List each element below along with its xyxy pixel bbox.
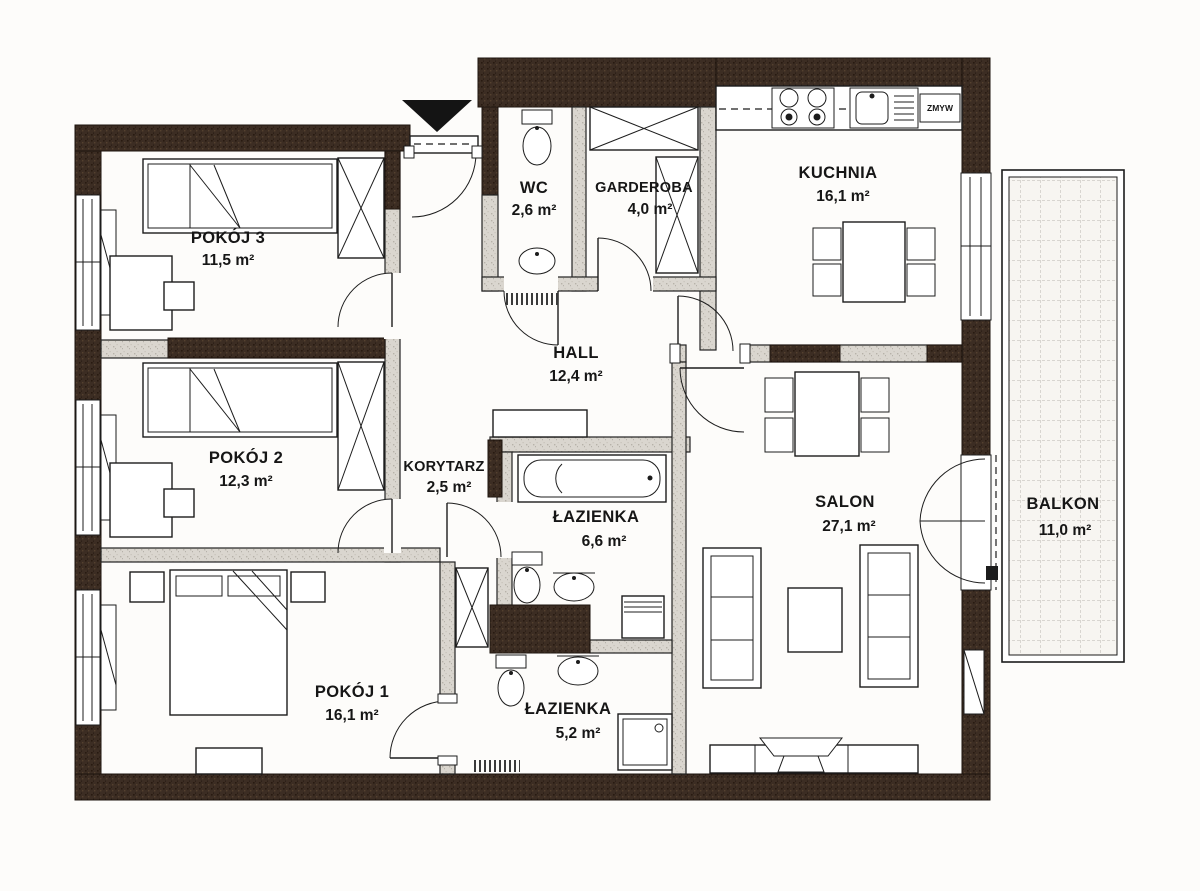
kitchen-sink-icon <box>850 88 918 128</box>
bathtub-icon <box>518 455 666 502</box>
coffee-table <box>788 588 842 652</box>
radiator <box>964 650 984 714</box>
entrance-arrow-icon <box>402 100 472 132</box>
room-area-lazienka-mala: 5,2 m² <box>556 725 601 742</box>
room-label-garderoba: GARDEROBA <box>595 180 693 196</box>
bed <box>143 159 337 233</box>
wardrobe-icon <box>590 107 698 150</box>
sink-icon <box>519 248 555 274</box>
room-area-pokoj1: 16,1 m² <box>325 707 378 724</box>
room-area-pokoj3: 11,5 m² <box>202 252 255 269</box>
room-label-kuchnia: KUCHNIA <box>799 164 878 182</box>
door-pokoj3 <box>338 273 392 327</box>
wardrobe-icon <box>456 568 488 647</box>
room-kuchnia: ZMYW KUCHNIA 16,1 m² <box>716 86 962 302</box>
desk <box>110 463 194 537</box>
kitchen-table <box>813 222 935 302</box>
room-garderoba: GARDEROBA 4,0 m² <box>590 107 698 273</box>
room-label-salon: SALON <box>815 493 875 511</box>
room-pokoj2: POKÓJ 2 12,3 m² <box>110 362 384 537</box>
shower-icon <box>618 714 672 770</box>
wardrobe-icon <box>338 158 384 258</box>
nightstand-right <box>291 572 325 602</box>
desk <box>110 256 194 330</box>
door-pokoj2 <box>338 499 392 553</box>
room-salon: SALON 27,1 m² <box>703 372 984 773</box>
room-label-balkon: BALKON <box>1027 495 1100 513</box>
washing-machine-icon <box>622 596 664 638</box>
toilet-icon <box>496 655 526 706</box>
room-label-wc: WC <box>520 179 548 197</box>
toilet-icon <box>522 110 552 165</box>
room-label-pokoj2: POKÓJ 2 <box>209 448 283 467</box>
sofa-right <box>860 545 918 687</box>
entrance-door-swing <box>412 153 476 217</box>
room-area-kuchnia: 16,1 m² <box>816 188 869 205</box>
room-pokoj1: POKÓJ 1 16,1 m² <box>130 570 389 774</box>
room-area-lazienka-duza: 6,6 m² <box>582 533 627 550</box>
balcony: BALKON 11,0 m² <box>1002 170 1124 662</box>
dishwasher-label: ZMYW <box>927 103 954 113</box>
room-lazienka-mala: ŁAZIENKA 5,2 m² <box>474 655 672 770</box>
room-area-balkon: 11,0 m² <box>1039 522 1092 539</box>
room-label-hall: HALL <box>553 344 599 362</box>
room-label-korytarz: KORYTARZ <box>403 459 484 475</box>
floor-plan-drawing: POKÓJ 3 11,5 m² POKÓJ 2 12,3 m² <box>0 0 1200 891</box>
room-area-wc: 2,6 m² <box>512 202 557 219</box>
dishwasher: ZMYW <box>920 94 960 122</box>
door-pokoj1 <box>390 701 447 758</box>
hall-cabinet <box>493 410 587 437</box>
room-label-pokoj1: POKÓJ 1 <box>315 682 389 701</box>
dresser <box>196 748 262 774</box>
room-area-pokoj2: 12,3 m² <box>219 473 272 490</box>
wardrobe-icon <box>338 362 384 490</box>
room-area-hall: 12,4 m² <box>549 368 602 385</box>
sofa-left <box>703 548 761 688</box>
dining-table <box>765 372 889 456</box>
door-balkon <box>920 455 998 590</box>
door-salon <box>680 368 744 432</box>
window-pokoj1 <box>76 590 116 725</box>
door-lazienka-duza <box>447 503 501 557</box>
room-label-pokoj3: POKÓJ 3 <box>191 228 265 247</box>
bed <box>143 363 337 437</box>
room-hall: HALL 12,4 m² <box>493 344 603 437</box>
room-label-lazienka-duza: ŁAZIENKA <box>553 508 640 526</box>
double-bed <box>170 570 287 715</box>
nightstand-left <box>130 572 164 602</box>
toilet-icon <box>512 552 542 603</box>
sink-icon <box>553 573 595 601</box>
room-area-garderoba: 4,0 m² <box>628 201 673 218</box>
sink-icon <box>557 656 599 685</box>
room-area-korytarz: 2,5 m² <box>427 479 472 496</box>
room-area-salon: 27,1 m² <box>822 518 875 535</box>
stove-icon <box>772 88 834 128</box>
room-wc: WC 2,6 m² <box>506 110 560 299</box>
floor-plan: POKÓJ 3 11,5 m² POKÓJ 2 12,3 m² <box>0 0 1200 891</box>
window-kuchnia <box>961 173 991 320</box>
room-label-lazienka-mala: ŁAZIENKA <box>525 700 612 718</box>
